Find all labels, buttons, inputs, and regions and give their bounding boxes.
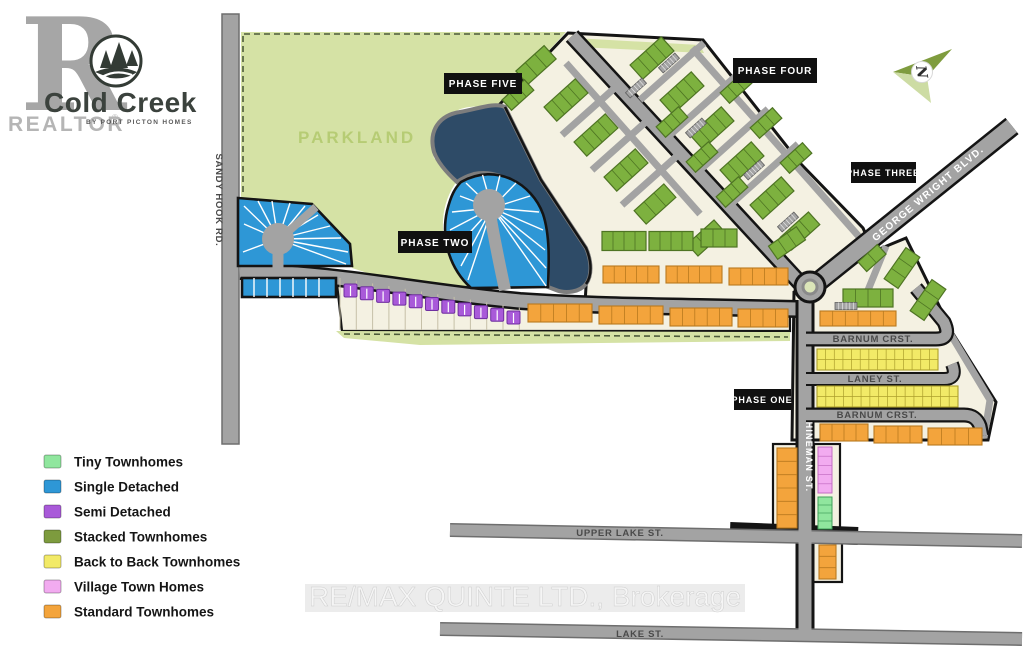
standard-townhome-row xyxy=(819,545,836,579)
phase-two-label: PHASE TWO xyxy=(401,238,470,249)
roundabout xyxy=(795,272,825,302)
street-label-upper-lake: UPPER LAKE ST. xyxy=(576,528,663,539)
road-upper-lake-st xyxy=(450,530,1022,541)
standard-townhome-row xyxy=(528,304,592,322)
street-label-barnum-lower: BARNUM CRST. xyxy=(837,410,918,421)
legend-item: Semi Detached xyxy=(44,505,171,520)
stacked-townhome-building xyxy=(602,232,646,251)
semi-detached-house xyxy=(474,306,487,319)
legend-swatch xyxy=(44,530,61,543)
legend-label: Tiny Townhomes xyxy=(74,455,183,470)
legend-label: Stacked Townhomes xyxy=(74,530,207,545)
legend-item: Stacked Townhomes xyxy=(44,530,207,545)
legend-swatch xyxy=(44,555,61,568)
standard-townhome-row xyxy=(820,311,896,326)
legend-item: Standard Townhomes xyxy=(44,605,214,620)
phase-one-label: PHASE ONE xyxy=(731,395,792,405)
buffer-strip xyxy=(336,331,790,345)
standard-townhome-row xyxy=(729,268,788,285)
north-arrow: N xyxy=(893,49,952,103)
semi-detached-house xyxy=(442,300,455,313)
legend-swatch xyxy=(44,580,61,593)
site-plan-map: SANDY HOOK RD. GEORGE WRIGHT BLVD. BARNU… xyxy=(0,0,1024,663)
semi-detached-house xyxy=(377,289,390,302)
semi-detached-house xyxy=(507,311,520,324)
legend-item: Village Town Homes xyxy=(44,580,204,595)
back-to-back-townhome-row xyxy=(817,349,938,370)
legend-label: Village Town Homes xyxy=(74,580,204,595)
legend-swatch xyxy=(44,505,61,518)
standard-townhome-row xyxy=(670,308,732,326)
brand-tagline: BY PORT PICTON HOMES xyxy=(86,119,193,126)
village-townhome-row xyxy=(818,447,832,493)
legend-swatch xyxy=(44,480,61,493)
cold-creek-emblem-icon xyxy=(91,36,141,86)
back-to-back-townhome-row xyxy=(817,386,958,407)
legend-label: Single Detached xyxy=(74,480,179,495)
legend: Tiny TownhomesSingle DetachedSemi Detach… xyxy=(44,455,240,620)
semi-detached-house xyxy=(393,292,406,305)
stacked-townhome-building xyxy=(649,232,693,251)
street-label-barnum-upper: BARNUM CRST. xyxy=(833,334,914,345)
street-label-george-wright: GEORGE WRIGHT BLVD. xyxy=(870,144,986,244)
stacked-townhome-building xyxy=(701,229,737,247)
legend-swatch xyxy=(44,455,61,468)
parkland-label: PARKLAND xyxy=(298,128,416,147)
standard-townhome-row xyxy=(874,426,922,443)
logo: R REALTOR ® Cold Creek BY PORT PICTON HO… xyxy=(8,0,197,141)
legend-item: Single Detached xyxy=(44,480,179,495)
standard-townhome-row xyxy=(666,266,722,283)
standard-townhome-row xyxy=(928,428,982,445)
standard-townhome-row xyxy=(777,448,797,528)
standard-townhome-row xyxy=(738,309,788,327)
semi-detached-house xyxy=(409,295,422,308)
legend-label: Back to Back Townhomes xyxy=(74,555,240,570)
parking-strip xyxy=(835,303,857,310)
brokerage-watermark-text: RE/MAX QUINTE LTD., Brokerage xyxy=(309,581,741,612)
brand-name: Cold Creek xyxy=(44,87,197,118)
site-plan-page: SANDY HOOK RD. GEORGE WRIGHT BLVD. BARNU… xyxy=(0,0,1024,663)
street-label-lake: LAKE ST. xyxy=(616,629,664,640)
street-label-hineman: HINEMAN ST. xyxy=(804,422,814,493)
legend-label: Standard Townhomes xyxy=(74,605,214,620)
tiny-townhome-row xyxy=(818,497,832,529)
semi-detached-house xyxy=(491,308,504,321)
phase-three-label: PHASE THREE xyxy=(846,168,920,178)
legend-label: Semi Detached xyxy=(74,505,171,520)
semi-detached-house xyxy=(458,303,471,316)
phase-four-label: PHASE FOUR xyxy=(738,66,813,77)
legend-item: Tiny Townhomes xyxy=(44,455,183,470)
phase-five-label: PHASE FIVE xyxy=(449,79,517,90)
semi-detached-house xyxy=(344,284,357,297)
legend-swatch xyxy=(44,605,61,618)
street-label-sandy-hook: SANDY HOOK RD. xyxy=(213,153,224,246)
street-label-laney: LANEY ST. xyxy=(848,374,903,385)
semi-detached-house xyxy=(360,287,373,300)
standard-townhome-row xyxy=(820,424,868,441)
culdesac-pond xyxy=(473,189,505,221)
standard-townhome-row xyxy=(603,266,659,283)
semi-detached-house xyxy=(426,298,439,311)
legend-item: Back to Back Townhomes xyxy=(44,555,240,570)
standard-townhome-row xyxy=(599,306,663,324)
brokerage-watermark: RE/MAX QUINTE LTD., Brokerage xyxy=(305,581,745,612)
